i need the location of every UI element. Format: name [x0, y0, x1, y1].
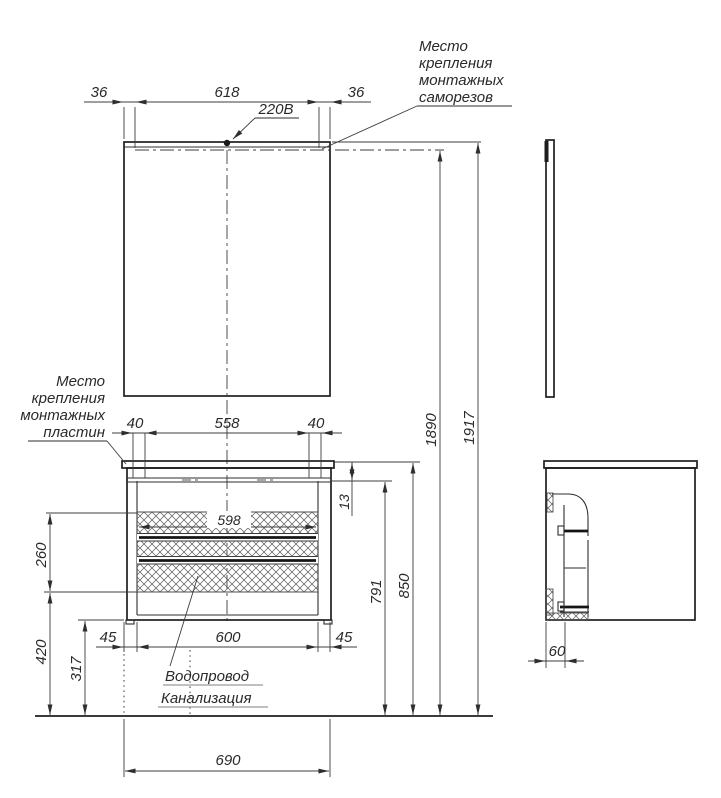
dim-mirror-margin-right: 36	[348, 84, 365, 101]
screws-note-line2: крепления	[419, 55, 492, 72]
dim-zone-height: 260	[33, 542, 50, 569]
dim-plate-offset-right: 40	[308, 415, 325, 432]
vanity-body-side	[546, 468, 695, 620]
dim-leg-span: 600	[215, 629, 241, 646]
overall-width-dimension: 690	[124, 719, 330, 777]
right-side-dimensions: 13 791 850	[331, 462, 420, 715]
plumbing-note: Водопровод Канализация	[158, 576, 268, 707]
dim-zone-width: 598	[217, 512, 241, 528]
dim-leg-offset-right: 45	[336, 629, 353, 646]
screws-note-line4: саморезов	[419, 89, 493, 106]
height-dimensions: 1890 1917	[423, 143, 478, 715]
vanity-front-view: 598	[122, 461, 334, 624]
screws-note-line3: монтажных	[419, 72, 504, 89]
vanity-side-view	[544, 461, 697, 620]
mirror-side-bracket	[545, 141, 549, 162]
installation-drawing: 36 618 36 220В Место крепления монтажных…	[0, 0, 721, 798]
leg-dimension: 45 600 45	[96, 622, 357, 652]
dim-total-height: 1917	[461, 411, 478, 445]
plates-note-line4: пластин	[43, 424, 105, 441]
installation-drawing-page: 36 618 36 220В Место крепления монтажных…	[0, 0, 721, 798]
dim-mirror-screw-span: 618	[214, 84, 240, 101]
bottom-panel	[546, 613, 588, 620]
dim-plate-drop: 13	[336, 494, 352, 510]
dim-plate-offset-left: 40	[127, 415, 144, 432]
plates-note-leader	[107, 441, 126, 464]
countertop	[122, 461, 334, 468]
power-label: 220В	[257, 101, 293, 118]
plates-note: Место крепления монтажных пластин	[20, 373, 126, 464]
plumbing-note-line1: Водопровод	[165, 668, 249, 685]
dim-rail-height: 791	[368, 579, 385, 604]
dim-zone-bottom-to-floor: 420	[33, 639, 50, 665]
side-inset-dimension: 60	[528, 622, 584, 668]
dim-mount-height: 1890	[423, 413, 440, 447]
plates-note-line2: крепления	[32, 390, 105, 407]
dim-mirror-margin-left: 36	[91, 84, 108, 101]
power-outlet-point	[224, 140, 230, 146]
dim-leg-offset-left: 45	[100, 629, 117, 646]
plates-note-line1: Место	[56, 373, 105, 390]
plates-note-line3: монтажных	[20, 407, 105, 424]
mirror-side-view	[545, 140, 555, 397]
power-callout: 220В	[233, 101, 299, 139]
dim-plate-span: 558	[214, 415, 240, 432]
dim-cabinet-bottom-to-floor: 317	[68, 656, 85, 682]
dim-total-width: 690	[215, 752, 241, 769]
mirror-top-dimension: 36 618 36	[84, 84, 371, 148]
wall-bracket-lower	[546, 589, 553, 615]
screws-note-line1: Место	[419, 38, 468, 55]
dim-counter-height: 850	[396, 573, 413, 599]
screws-note-leader	[322, 106, 417, 149]
plumbing-note-line2: Канализация	[161, 690, 252, 707]
dim-side-inset: 60	[549, 643, 566, 660]
wall-bracket-upper	[547, 493, 553, 512]
left-side-dimensions: 260 420 317	[33, 513, 137, 715]
countertop-side	[544, 461, 697, 468]
